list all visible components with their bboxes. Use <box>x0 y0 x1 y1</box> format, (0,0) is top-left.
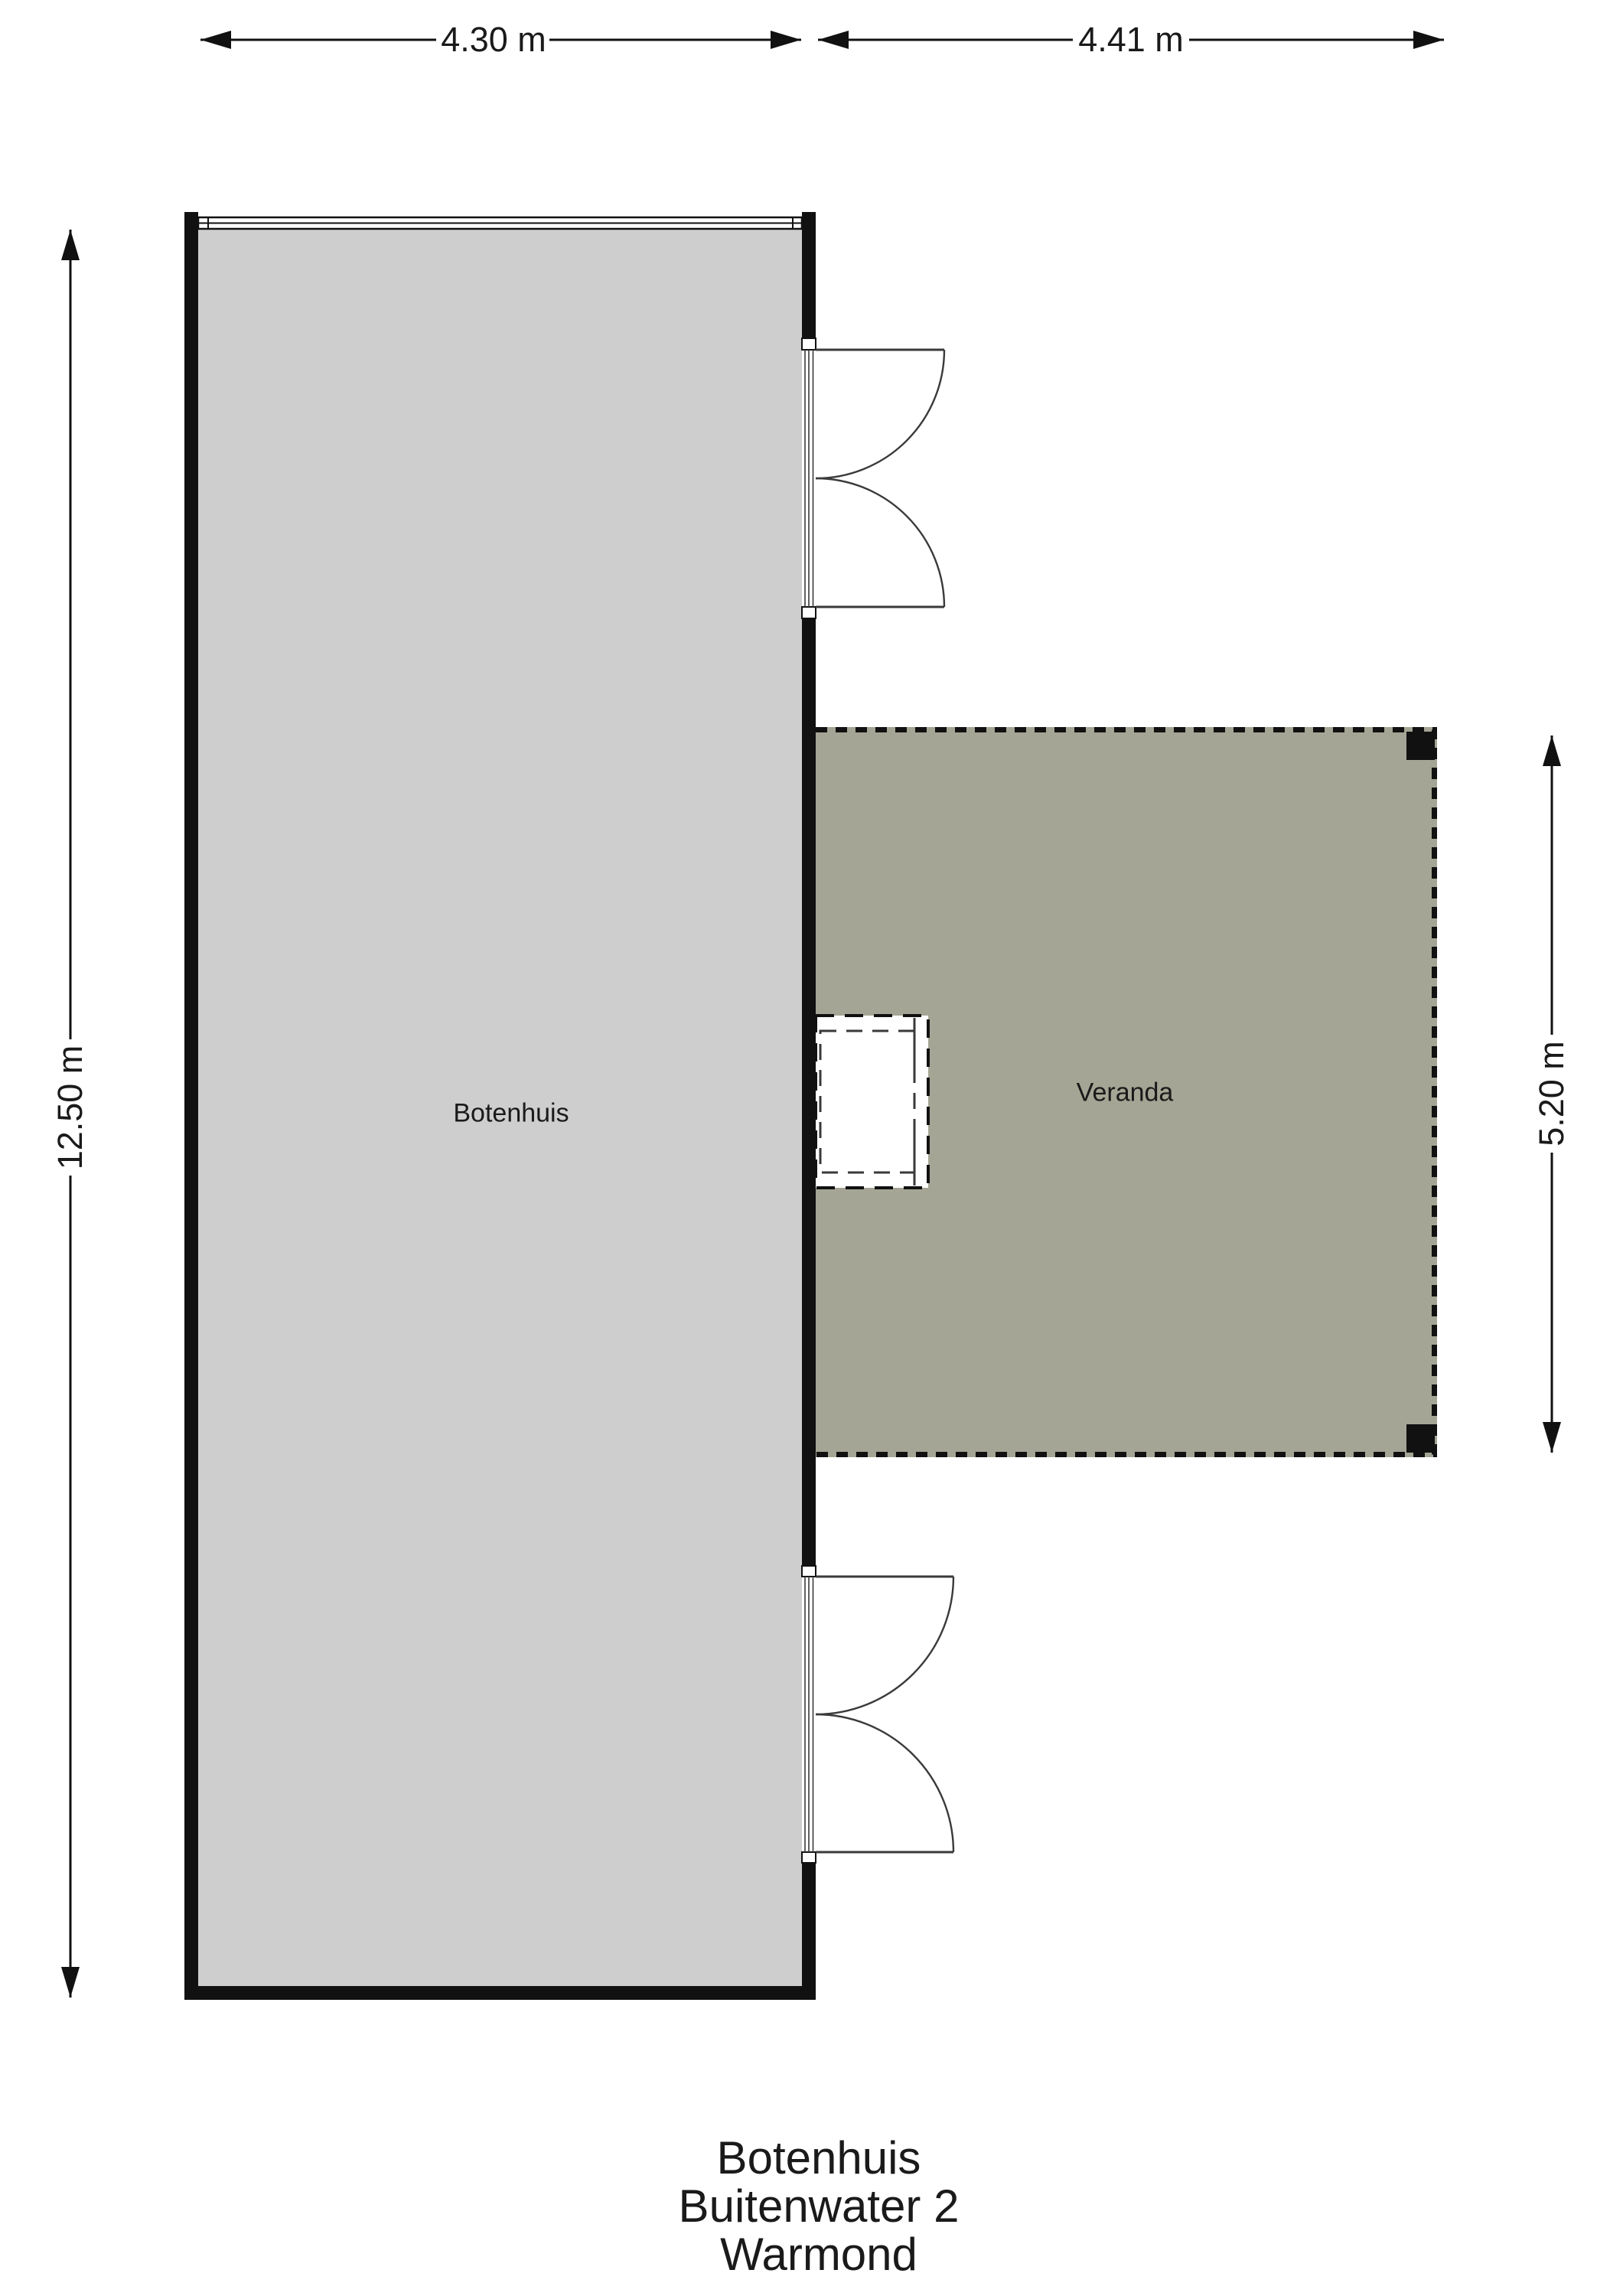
door1-jamb-bottom <box>802 607 816 618</box>
title-line-2: Buitenwater 2 <box>679 2182 960 2230</box>
floorplan-drawing <box>0 0 1623 2296</box>
dimension-label-right: 5.20 m <box>1532 1041 1572 1146</box>
room-label-botenhuis: Botenhuis <box>453 1099 569 1129</box>
door1-frame <box>805 350 813 607</box>
wall-right-lower <box>802 1863 816 2000</box>
door2-swing-top <box>816 1577 953 1714</box>
wall-left <box>184 212 198 2000</box>
dimension-label-left: 12.50 m <box>51 1045 90 1170</box>
passage-box-outer <box>816 1016 928 1188</box>
title-line-3: Warmond <box>679 2230 960 2278</box>
door2-swing-bottom <box>816 1714 953 1852</box>
dimension-label-top-right: 4.41 m <box>1078 20 1184 60</box>
title-line-1: Botenhuis <box>679 2134 960 2182</box>
dimension-label-top-left: 4.30 m <box>441 20 546 60</box>
wall-right-middle <box>802 618 816 1566</box>
door1-swing-bottom <box>816 478 944 607</box>
wall-bottom <box>184 1986 816 2000</box>
wall-right-upper <box>802 212 816 338</box>
veranda-post-top-right <box>1406 732 1435 760</box>
room-label-veranda: Veranda <box>1077 1078 1174 1108</box>
door2-jamb-top <box>802 1566 816 1577</box>
door1-jamb-top <box>802 338 816 350</box>
door2-frame <box>805 1577 813 1852</box>
veranda-post-bottom-right <box>1406 1424 1435 1453</box>
door2-jamb-bottom <box>802 1852 816 1863</box>
door1-swing-top <box>816 350 944 478</box>
title-block: Botenhuis Buitenwater 2 Warmond <box>679 2134 960 2278</box>
floorplan: 4.30 m 4.41 m 12.50 m 5.20 m Botenhuis V… <box>0 0 1623 2296</box>
